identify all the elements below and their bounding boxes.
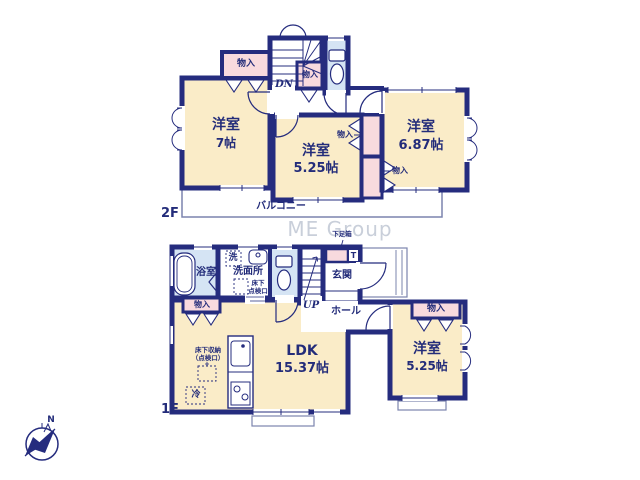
terrace-step [252, 416, 314, 426]
floorplan-canvas: ME Group 2F 洋室 7帖 洋室 5.25帖 洋室 6.87帖 物入 物… [0, 0, 640, 480]
room-2f-west-a-name: 洋室 [212, 118, 240, 132]
washroom-hatch-line1: 床下 [252, 280, 265, 287]
kitchen-counter-icon [228, 336, 253, 408]
room-1f-west-size: 5.25帖 [406, 360, 448, 372]
room-2f-west-c-size: 6.87帖 [398, 139, 443, 152]
bathtub-icon [174, 253, 195, 295]
floor-storage-line1: 床下収納 [195, 347, 221, 354]
bath-label: 浴室 [196, 268, 216, 278]
hall-label: ホール [331, 307, 361, 317]
washbasin-icon [249, 250, 267, 264]
room-2f-west-c-name: 洋室 [407, 120, 435, 134]
room-2f-west-b-size: 5.25帖 [293, 162, 338, 175]
stairs-down-label: DN [275, 80, 293, 90]
floor2-label: 2F [161, 207, 179, 220]
ldk-name: LDK [286, 344, 317, 358]
compass-north-label: N [47, 416, 55, 425]
fridge-label: 冷 [191, 391, 200, 400]
room-2f-west-b-name: 洋室 [302, 144, 330, 158]
laundry-label: 洗 [228, 254, 237, 263]
closet-2f-top-left-label: 物入 [237, 60, 255, 69]
closet-1f-left-label: 物入 [194, 301, 210, 309]
closet-1f-right-label: 物入 [427, 305, 445, 314]
terrace-step [398, 401, 446, 410]
washroom-hatch-line2: 点検口 [248, 288, 268, 295]
compass-icon [25, 423, 58, 460]
floor-storage-line2: （点検口） [192, 355, 225, 362]
room-1f-west-name: 洋室 [413, 342, 441, 356]
ldk-size: 15.37帖 [275, 362, 329, 375]
washroom-label: 洗面所 [233, 267, 263, 277]
entrance-label: 玄関 [332, 271, 352, 281]
balcony-label: バルコニー [256, 202, 306, 212]
closet-2f-mid-upper-label: 物入 [337, 131, 353, 139]
toilet-mark: T [351, 252, 356, 260]
stairs-up-label: UP [303, 301, 319, 311]
floor1-label: 1F [161, 403, 179, 416]
closet-2f-mid-lower-label: 物入 [392, 167, 408, 175]
shoe-cabinet-label: 下足箱 [332, 231, 352, 238]
room-2f-west-a-size: 7帖 [216, 137, 236, 149]
closet-2f-stair-label: 物入 [302, 71, 318, 79]
